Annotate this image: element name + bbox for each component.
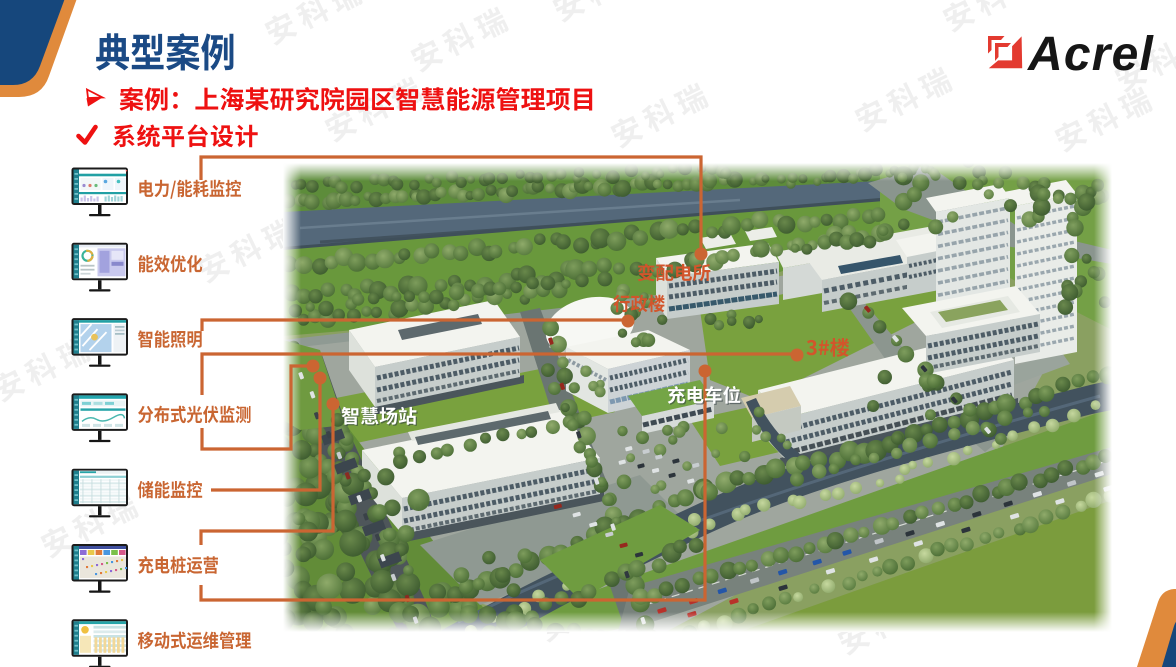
- svg-text:Acrel: Acrel: [1027, 28, 1155, 81]
